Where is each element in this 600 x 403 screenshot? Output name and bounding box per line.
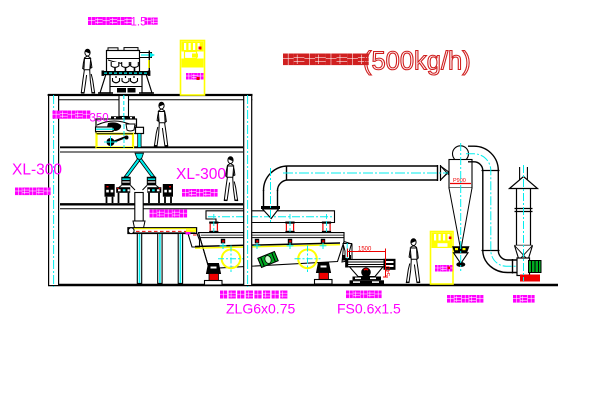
svg-text:1.5: 1.5 bbox=[131, 17, 147, 29]
svg-text:540: 540 bbox=[386, 265, 392, 276]
svg-text:350: 350 bbox=[90, 113, 109, 125]
svg-text:XL-300: XL-300 bbox=[12, 162, 62, 179]
svg-text:1500: 1500 bbox=[358, 247, 372, 253]
svg-text:P900: P900 bbox=[453, 178, 466, 184]
svg-text:FS0.6x1.5: FS0.6x1.5 bbox=[337, 301, 401, 317]
svg-text:ZLG6x0.75: ZLG6x0.75 bbox=[226, 301, 295, 317]
svg-text:(500kg/h): (500kg/h) bbox=[363, 48, 471, 76]
svg-text:XL-300: XL-300 bbox=[176, 166, 226, 183]
